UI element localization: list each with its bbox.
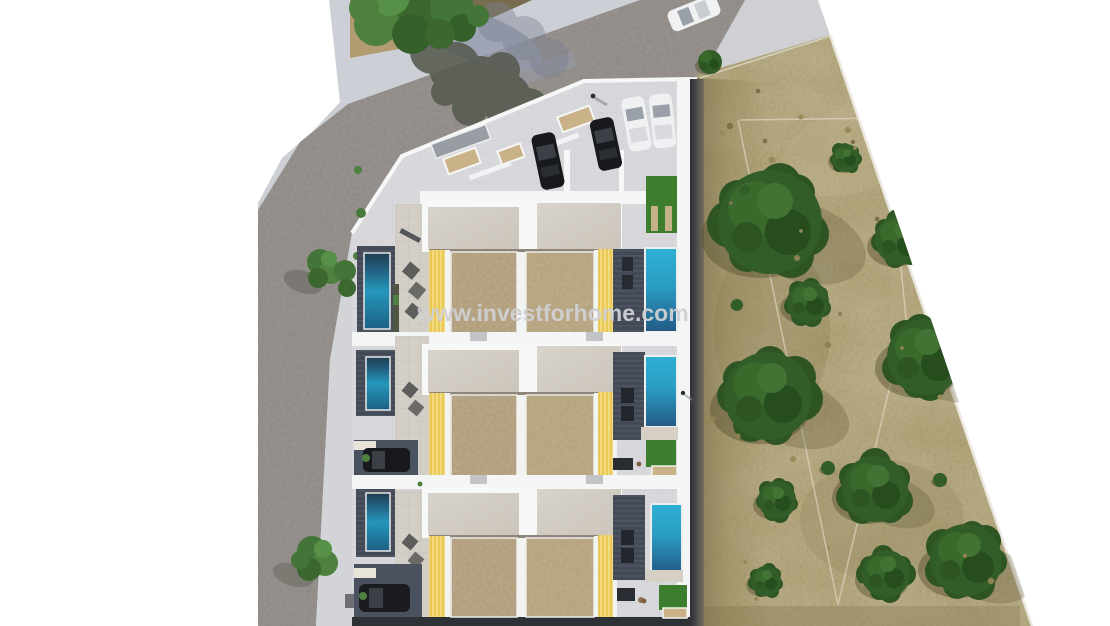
svg-text:www.investforhome.com: www.investforhome.com [416,300,688,326]
